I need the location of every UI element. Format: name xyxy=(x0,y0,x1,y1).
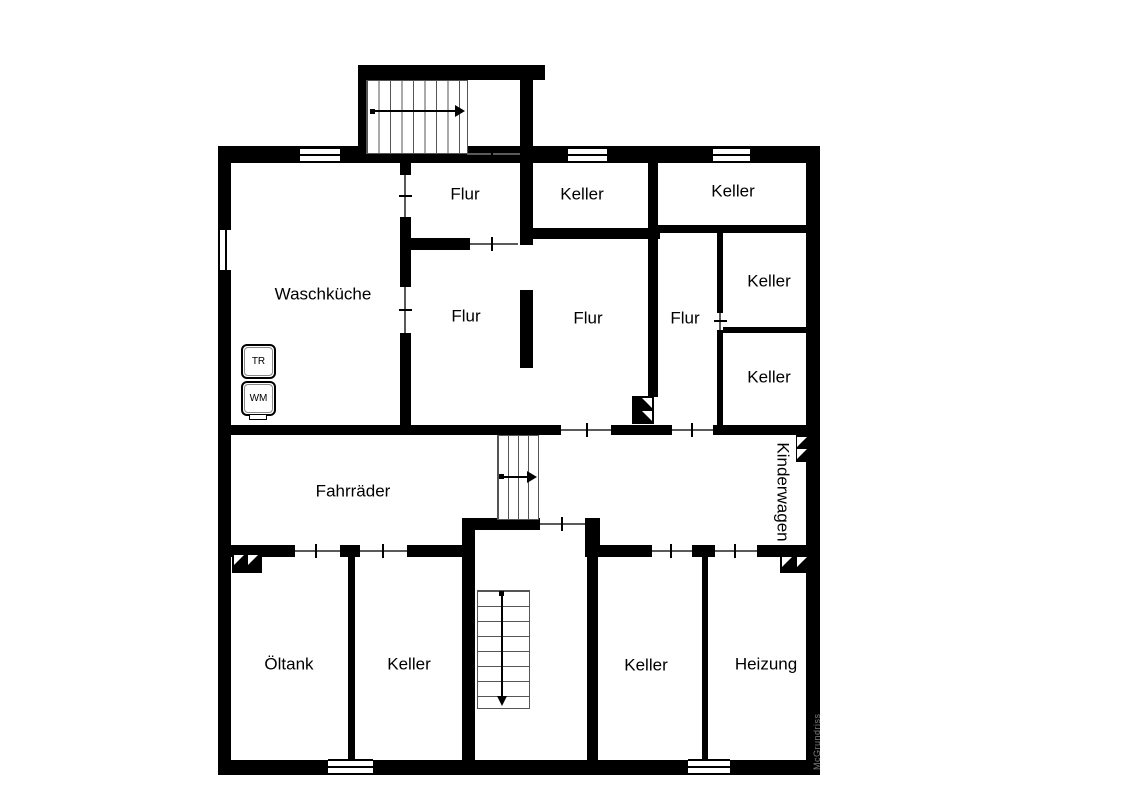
door-opening xyxy=(652,550,692,552)
window-symbol xyxy=(300,147,340,163)
door-tick xyxy=(714,320,727,322)
appliance-washing-machine-label: WM xyxy=(250,393,268,404)
stair-arrow-head-icon xyxy=(527,471,537,483)
stair-arrow-line xyxy=(501,476,528,478)
wall-waschkueche-east-2 xyxy=(400,217,411,287)
room-label-flur-right: Flur xyxy=(670,310,699,327)
window-symbol xyxy=(218,230,231,270)
door-tick xyxy=(382,544,384,558)
door-swing-notch xyxy=(234,555,244,565)
wall-flur-right-east-2 xyxy=(717,330,723,425)
room-label-keller-bottomleft: Keller xyxy=(387,656,430,673)
door-swing-notch xyxy=(797,557,807,567)
room-label-fahrraeder: Fahrräder xyxy=(316,483,391,500)
wall-fahrraeder-north-1 xyxy=(218,425,561,435)
door-tick xyxy=(586,423,588,437)
door-tick xyxy=(315,544,317,558)
wall-stair-enclosure-right xyxy=(520,65,533,150)
door-tick xyxy=(399,309,412,311)
stair-arrow-head-icon xyxy=(497,696,507,706)
door-swing-icon xyxy=(796,435,813,462)
wall-keller-top-south xyxy=(533,228,660,239)
door-swing-notch xyxy=(248,555,258,565)
window-symbol xyxy=(713,147,750,163)
window-symbol xyxy=(328,759,373,775)
appliance-washing-machine: WM xyxy=(241,381,276,416)
room-label-keller-right-upper: Keller xyxy=(747,273,790,290)
appliance-dryer: TR xyxy=(241,344,276,379)
door-opening xyxy=(715,550,757,552)
wall-waschkueche-east-1 xyxy=(400,163,411,175)
floor-plan-canvas: TR WM Flur Keller Keller Waschküche Flur… xyxy=(0,0,1123,794)
wall-flur-center-east xyxy=(648,163,658,397)
room-label-flur-top: Flur xyxy=(450,186,479,203)
wall-keller-right-divider xyxy=(723,327,806,333)
door-tick xyxy=(561,517,563,531)
wall-fahrraeder-south-3 xyxy=(407,545,463,557)
door-opening xyxy=(470,243,518,245)
room-label-oeltank: Öltank xyxy=(264,656,313,673)
wall-flur-top-east xyxy=(520,163,533,245)
room-label-flur-left: Flur xyxy=(451,308,480,325)
wall-flur-top-south xyxy=(411,238,470,250)
door-tick xyxy=(670,544,672,558)
door-swing-icon xyxy=(232,553,262,573)
wall-stair-enclosure-left xyxy=(358,65,366,152)
door-tick xyxy=(399,195,412,197)
wall-stair-enclosure-top xyxy=(358,65,545,80)
door-swing-notch xyxy=(642,398,652,408)
door-tick xyxy=(691,423,693,437)
door-swing-notch xyxy=(782,557,792,567)
window-symbol xyxy=(688,759,730,775)
room-label-heizung: Heizung xyxy=(735,656,797,673)
wall-flur-mid-divider xyxy=(520,290,533,368)
door-opening xyxy=(295,550,340,552)
door-tick xyxy=(734,544,736,558)
wall-corridor-south-1 xyxy=(600,545,652,557)
stair-arrow-line xyxy=(372,110,456,112)
wall-keller-topright-south xyxy=(658,225,806,233)
door-tick xyxy=(491,147,493,161)
door-opening xyxy=(467,153,520,155)
door-tick xyxy=(491,237,493,251)
wall-fahrraeder-north-2 xyxy=(611,425,672,435)
basement-stairs-icon xyxy=(477,590,530,709)
wall-heizung-west xyxy=(702,557,708,760)
room-label-keller-bottomright: Keller xyxy=(624,657,667,674)
room-label-kinderwagen: Kinderwagen xyxy=(775,442,792,541)
appliance-tab xyxy=(249,414,267,420)
room-label-flur-center: Flur xyxy=(573,310,602,327)
room-label-keller-topmid: Keller xyxy=(560,186,603,203)
wall-oeltank-east xyxy=(348,557,355,760)
room-label-keller-topright: Keller xyxy=(711,183,754,200)
wall-waschkueche-east-3 xyxy=(400,333,411,425)
room-label-keller-right-lower: Keller xyxy=(747,369,790,386)
wall-stairroom-west xyxy=(462,518,475,760)
door-swing-notch xyxy=(797,437,807,447)
room-label-waschkueche: Waschküche xyxy=(275,286,372,303)
wall-flur-right-east-1 xyxy=(717,233,723,313)
stair-arrow-head-icon xyxy=(455,105,465,117)
wall-corridor-south-2 xyxy=(692,545,715,557)
watermark: McGrundriss xyxy=(813,718,822,770)
entrance-stairs-icon xyxy=(366,80,468,154)
door-swing-notch xyxy=(797,449,807,459)
door-swing-icon xyxy=(632,396,654,424)
wall-fahrraeder-north-3 xyxy=(713,425,808,435)
stair-arrow-line xyxy=(501,593,503,697)
door-swing-notch xyxy=(642,411,652,421)
appliance-dryer-label: TR xyxy=(252,356,265,367)
wall-fahrraeder-south-2 xyxy=(340,545,360,557)
window-symbol xyxy=(568,147,607,163)
wall-stairroom-east xyxy=(587,530,598,760)
door-swing-icon xyxy=(780,555,812,573)
